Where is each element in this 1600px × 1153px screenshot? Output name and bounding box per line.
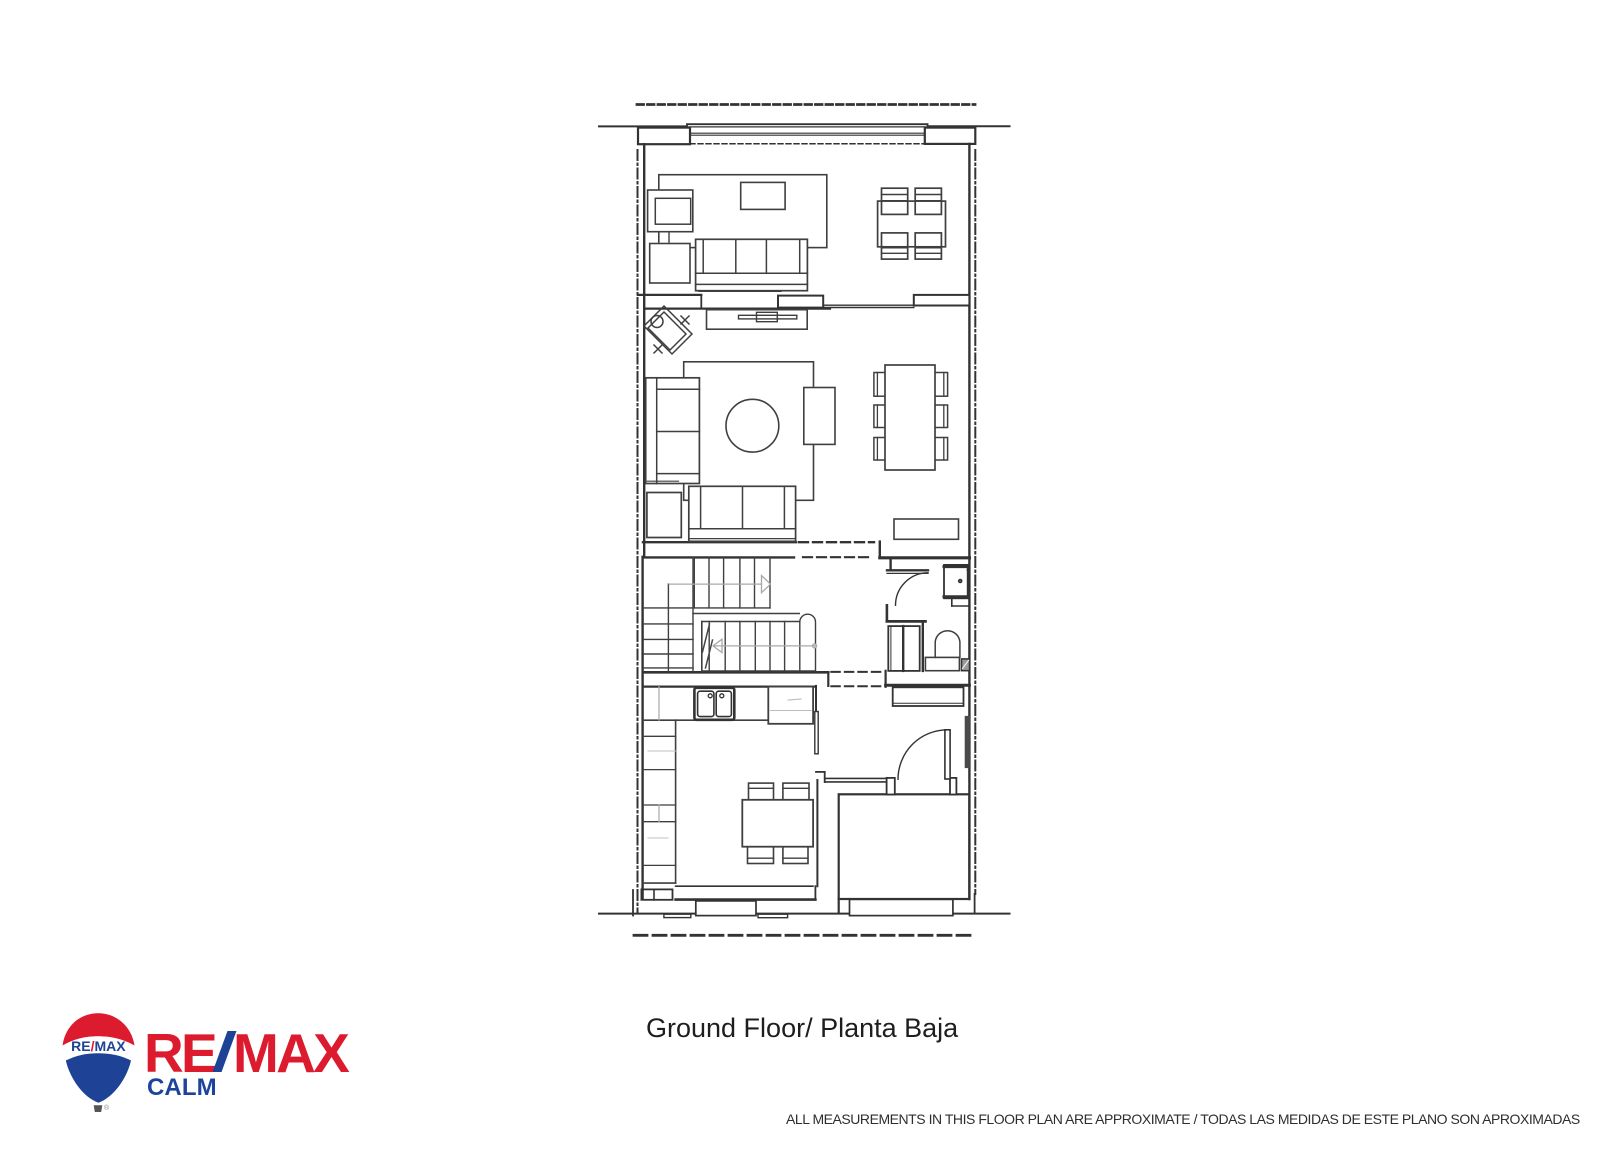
svg-text:RE/MAX: RE/MAX [71, 1038, 126, 1054]
svg-text:®: ® [104, 1104, 110, 1112]
